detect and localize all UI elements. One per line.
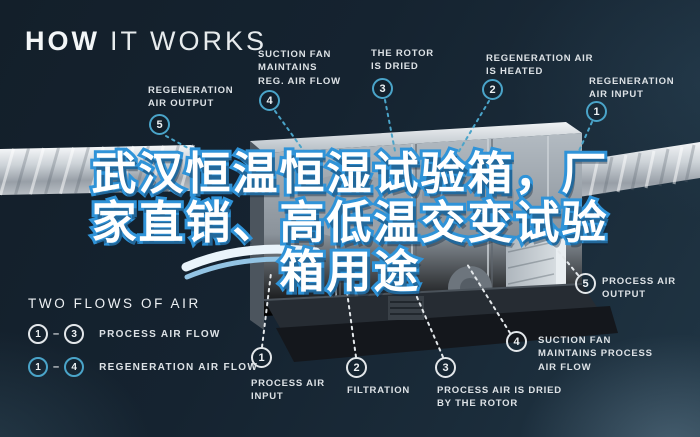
label-regeneration-air-output: REGENERATION AIR OUTPUT bbox=[148, 84, 233, 111]
infographic-canvas: HOWIT WORKS REGENERATION AIR OUTPUT 5 SU… bbox=[0, 0, 700, 437]
badge-regeneration-3: 3 bbox=[372, 78, 393, 99]
label-process-air-input: PROCESS AIR INPUT bbox=[251, 377, 325, 404]
legend-row-regeneration: 1 – 4 REGENERATION AIR FLOW bbox=[28, 357, 258, 377]
legend-regeneration-label: REGENERATION AIR FLOW bbox=[99, 362, 258, 373]
legend-process-label: PROCESS AIR FLOW bbox=[99, 329, 221, 340]
page-title: HOWIT WORKS bbox=[25, 26, 267, 57]
label-rotor-is-dried: THE ROTOR IS DRIED bbox=[371, 47, 434, 74]
page-title-light: IT WORKS bbox=[110, 26, 267, 56]
badge-process-2: 2 bbox=[346, 357, 367, 378]
legend-two-flows: TWO FLOWS OF AIR 1 – 3 PROCESS AIR FLOW … bbox=[28, 296, 258, 377]
legend-title: TWO FLOWS OF AIR bbox=[28, 296, 258, 311]
headline-line-2: 家直销、高低温交变试验 bbox=[0, 198, 700, 247]
headline-line-3: 箱用途 bbox=[0, 247, 700, 296]
label-process-air-dried: PROCESS AIR IS DRIED BY THE ROTOR bbox=[437, 384, 562, 411]
badge-regeneration-4: 4 bbox=[259, 90, 280, 111]
badge-process-4: 4 bbox=[506, 331, 527, 352]
label-suction-fan-process: SUCTION FAN MAINTAINS PROCESS AIR FLOW bbox=[538, 334, 653, 374]
legend-row-process: 1 – 3 PROCESS AIR FLOW bbox=[28, 324, 258, 344]
legend-process-dash: – bbox=[53, 328, 59, 340]
badge-regeneration-1: 1 bbox=[586, 101, 607, 122]
badge-process-3: 3 bbox=[435, 357, 456, 378]
badge-regeneration-2: 2 bbox=[482, 79, 503, 100]
headline-line-1: 武汉恒温恒湿试验箱，厂 bbox=[0, 149, 700, 198]
badge-regeneration-5: 5 bbox=[149, 114, 170, 135]
legend-process-from-badge: 1 bbox=[28, 324, 48, 344]
legend-regeneration-to-badge: 4 bbox=[64, 357, 84, 377]
label-regeneration-air-input: REGENERATION AIR INPUT bbox=[589, 75, 674, 102]
label-suction-fan-reg: SUCTION FAN MAINTAINS REG. AIR FLOW bbox=[258, 48, 341, 88]
legend-regeneration-from-badge: 1 bbox=[28, 357, 48, 377]
page-title-bold: HOW bbox=[25, 26, 100, 56]
label-filtration: FILTRATION bbox=[347, 384, 410, 397]
headline-overlay: 武汉恒温恒湿试验箱，厂 家直销、高低温交变试验 箱用途 bbox=[0, 149, 700, 296]
legend-regeneration-dash: – bbox=[53, 361, 59, 373]
label-regeneration-air-heated: REGENERATION AIR IS HEATED bbox=[486, 52, 593, 79]
legend-process-to-badge: 3 bbox=[64, 324, 84, 344]
